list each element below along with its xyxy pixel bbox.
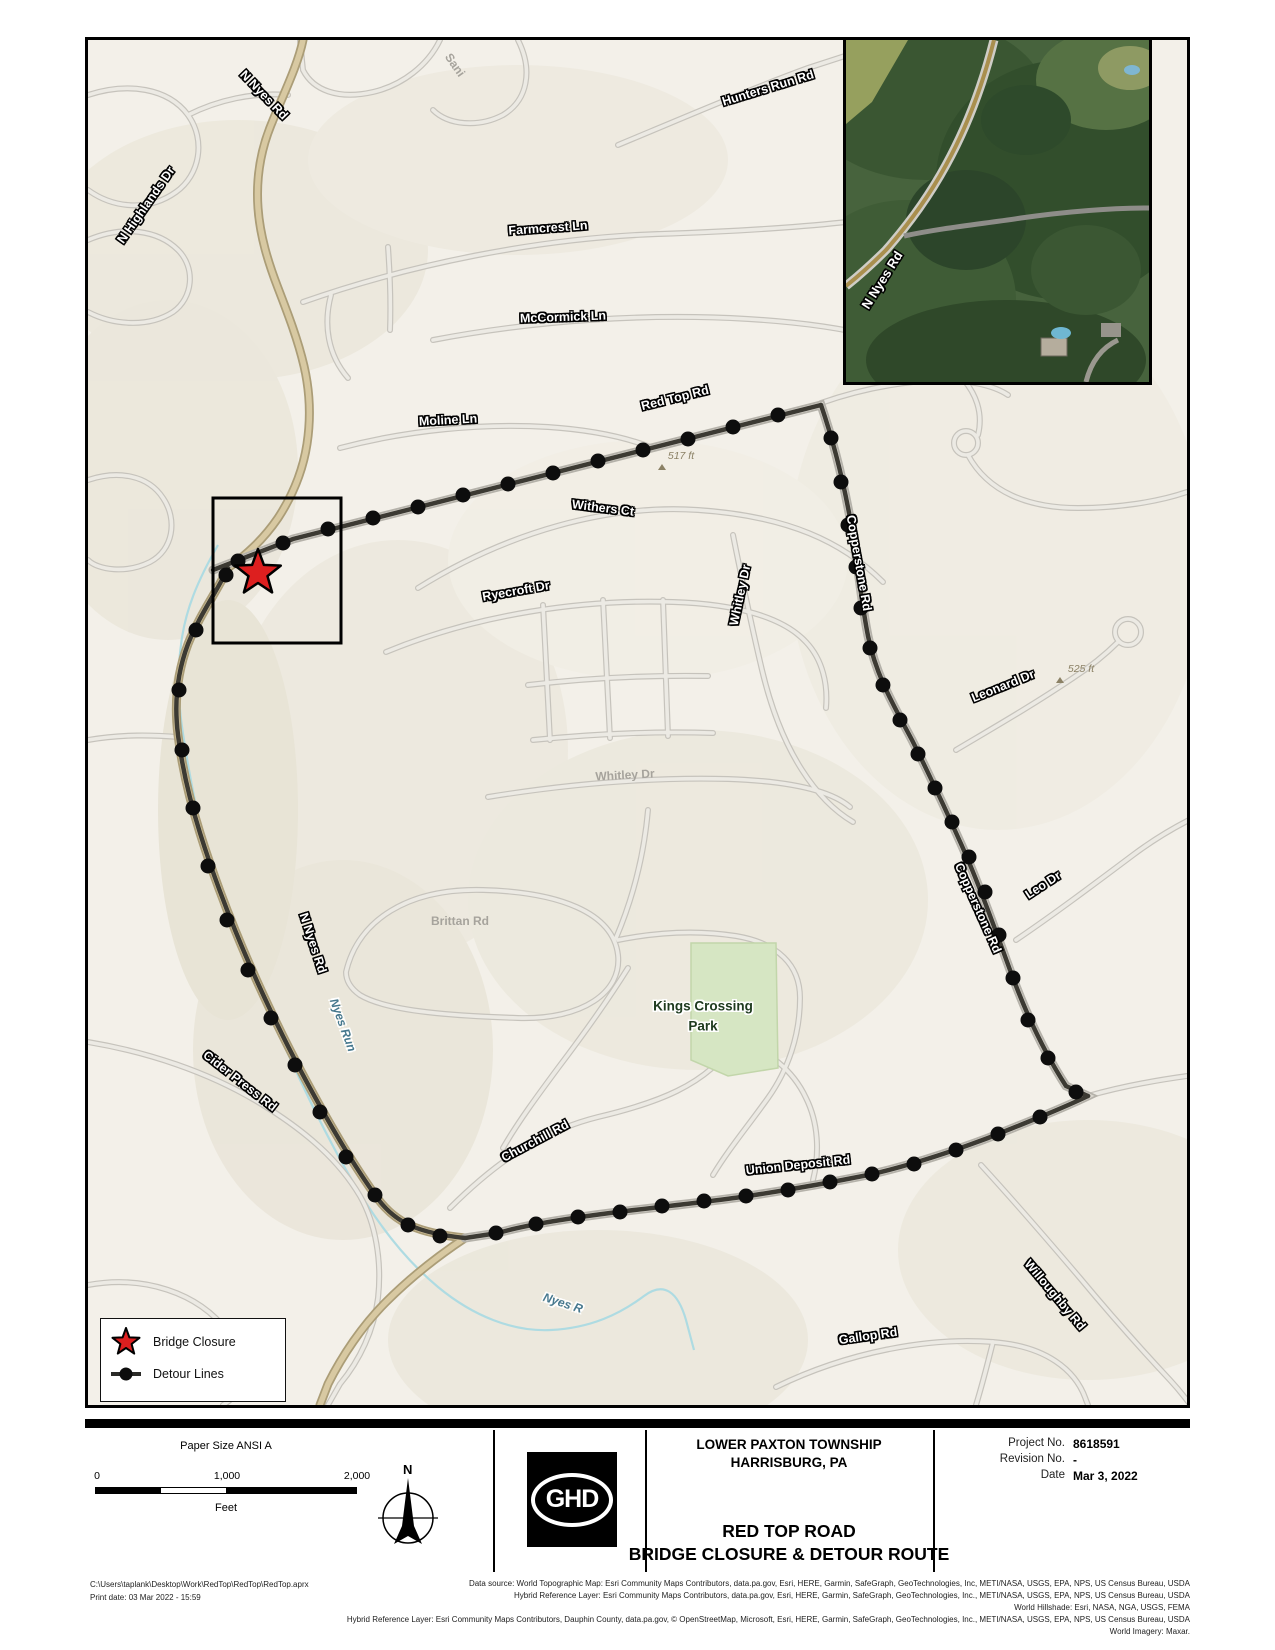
- label-elev-525: 525 ft: [1068, 663, 1094, 675]
- project-no-value: 8618591: [1073, 1437, 1120, 1451]
- elev-525-marker: [1056, 677, 1064, 683]
- north-arrow: [368, 1474, 448, 1558]
- client-city: HARRISBURG, PA: [647, 1455, 931, 1470]
- detour-lines-icon: [109, 1365, 143, 1383]
- footer-print-date: Print date: 03 Mar 2022 - 15:59: [90, 1591, 309, 1604]
- footer-file-path: C:\Users\taplank\Desktop\Work\RedTop\Red…: [90, 1578, 309, 1591]
- map-sheet: N Nyes Rd N Highlands Dr Hunters Run Rd …: [0, 0, 1275, 1650]
- credit-line: World Hillshade: Esri, NASA, NGA, USGS, …: [347, 1602, 1190, 1614]
- sheet-title-line1: RED TOP ROAD: [622, 1521, 956, 1542]
- titleblock-divider-1: [493, 1430, 495, 1572]
- credit-line: Data source: World Topographic Map: Esri…: [347, 1578, 1190, 1590]
- label-brittan-rd: Brittan Rd: [431, 914, 489, 928]
- pool-top: [1124, 65, 1140, 75]
- scale-tick-1000: 1,000: [214, 1470, 240, 1482]
- bridge-closure-star-icon: [109, 1325, 143, 1359]
- revision-no-value: -: [1073, 1453, 1077, 1467]
- date-label: Date: [940, 1469, 1065, 1483]
- pool-right: [1051, 327, 1071, 339]
- label-mccormick-ln: McCormick Ln: [520, 309, 607, 326]
- scale-tick-0: 0: [94, 1470, 100, 1482]
- legend-detour-lines-label: Detour Lines: [153, 1367, 224, 1381]
- paper-size-note: Paper Size ANSI A: [95, 1440, 357, 1452]
- house-1: [1041, 338, 1067, 356]
- revision-no-label: Revision No.: [940, 1453, 1065, 1467]
- scale-tick-2000: 2,000: [344, 1470, 370, 1482]
- date-value: Mar 3, 2022: [1073, 1469, 1138, 1483]
- credit-line: World Imagery: Maxar.: [347, 1626, 1190, 1638]
- label-kings-crossing-line1: Kings Crossing: [653, 999, 753, 1014]
- ghd-logo: GHD: [527, 1452, 617, 1547]
- footer-file-info: C:\Users\taplank\Desktop\Work\RedTop\Red…: [90, 1578, 309, 1604]
- client-name: LOWER PAXTON TOWNSHIP: [647, 1437, 931, 1452]
- legend: Bridge Closure Detour Lines: [100, 1318, 286, 1402]
- ghd-logo-oval: GHD: [531, 1473, 613, 1527]
- label-elev-517: 517 ft: [668, 450, 694, 462]
- ghd-logo-text: GHD: [546, 1485, 599, 1514]
- footer-credits: Data source: World Topographic Map: Esri…: [347, 1578, 1190, 1638]
- elev-517-marker: [658, 464, 666, 470]
- titleblock-top-bar: [85, 1419, 1190, 1428]
- legend-bridge-closure-label: Bridge Closure: [153, 1335, 236, 1349]
- label-kings-crossing-line2: Park: [688, 1019, 717, 1034]
- credit-line: Hybrid Reference Layer: Esri Community M…: [347, 1590, 1190, 1602]
- house-2: [1101, 323, 1121, 337]
- scale-units: Feet: [95, 1502, 357, 1514]
- aerial-inset-image: [846, 40, 1149, 382]
- scale-bar: [95, 1487, 357, 1494]
- credit-line: Hybrid Reference Layer: Esri Community M…: [347, 1614, 1190, 1626]
- project-no-label: Project No.: [940, 1437, 1065, 1451]
- aerial-inset: N Nyes Rd: [843, 37, 1152, 385]
- sheet-title-line2: BRIDGE CLOSURE & DETOUR ROUTE: [622, 1544, 956, 1565]
